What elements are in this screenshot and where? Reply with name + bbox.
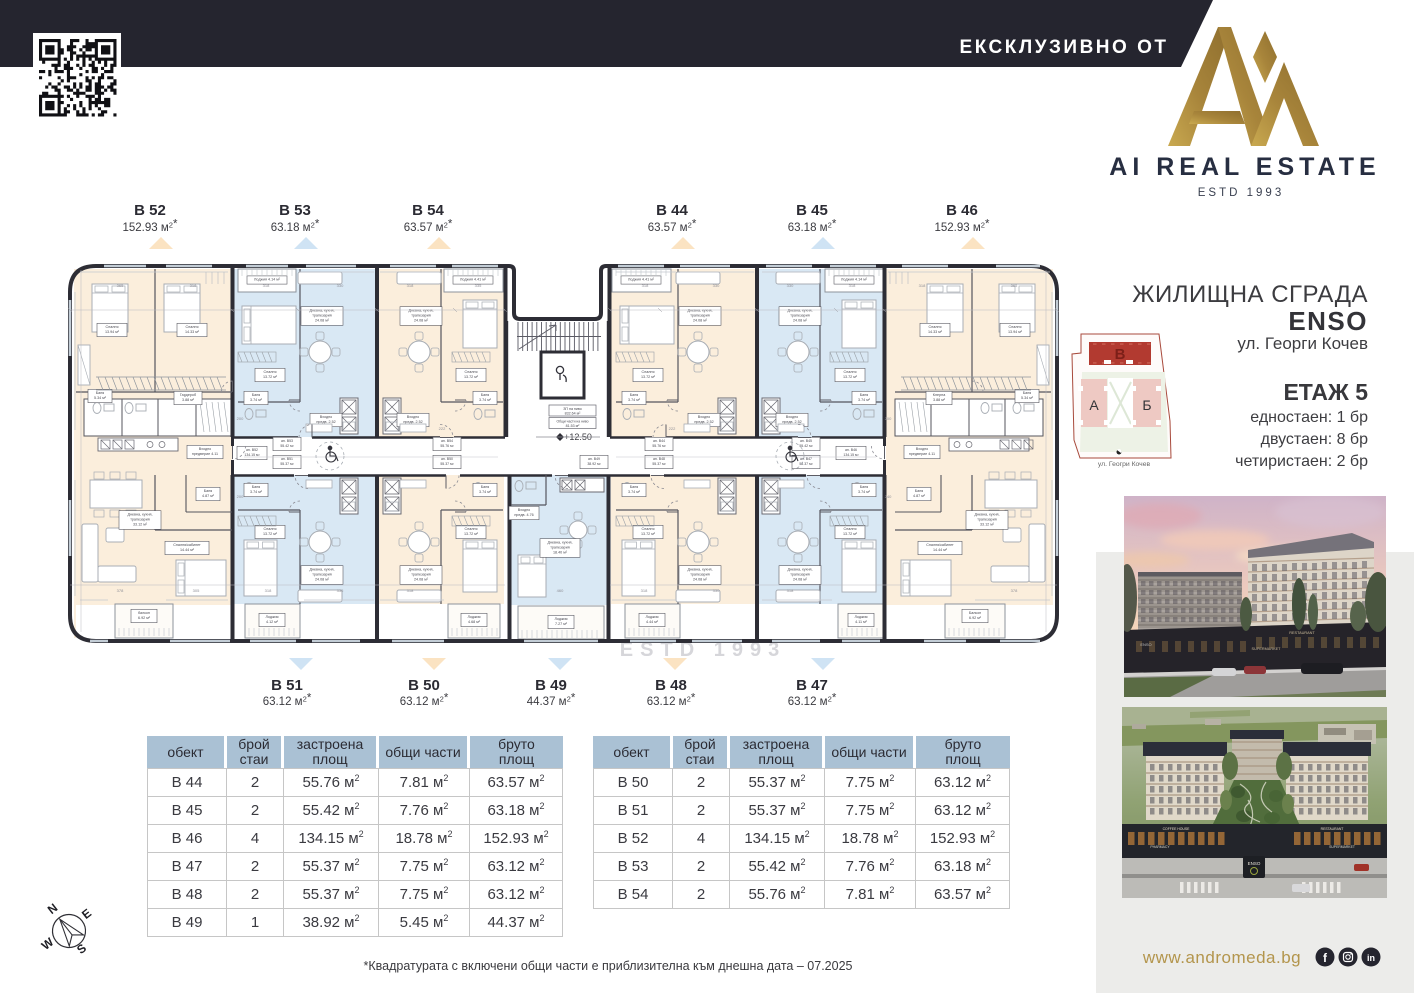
svg-text:RESTAURANT: RESTAURANT bbox=[1321, 827, 1344, 831]
svg-text:Лоджия: Лоджия bbox=[854, 615, 867, 619]
svg-text:балкон: балкон bbox=[138, 611, 150, 615]
svg-text:Баня: Баня bbox=[630, 393, 639, 397]
svg-text:Балкон: Балкон bbox=[969, 611, 981, 615]
svg-text:ап. B46: ап. B46 bbox=[845, 448, 857, 452]
svg-text:AI REAL ESTATE: AI REAL ESTATE bbox=[1109, 153, 1380, 181]
svg-text:ESTD 1993: ESTD 1993 bbox=[1198, 187, 1284, 199]
svg-text:трапезария: трапезария bbox=[312, 314, 332, 318]
svg-text:3.74 м²: 3.74 м² bbox=[250, 398, 263, 402]
svg-text:Лоджия 4.41 м²: Лоджия 4.41 м² bbox=[628, 278, 655, 282]
svg-text:63.18 м2*: 63.18 м2* bbox=[788, 219, 837, 235]
svg-text:Спалня/кабинет: Спалня/кабинет bbox=[926, 543, 954, 547]
svg-text:7.27 м²: 7.27 м² bbox=[555, 622, 568, 626]
svg-text:318: 318 bbox=[787, 588, 794, 593]
svg-text:3.88 м²: 3.88 м² bbox=[933, 398, 946, 402]
svg-text:330: 330 bbox=[337, 283, 344, 288]
svg-text:B 54: B 54 bbox=[412, 202, 444, 219]
svg-text:Лоджия 4.41 м²: Лоджия 4.41 м² bbox=[460, 278, 487, 282]
svg-text:B 48: B 48 bbox=[655, 677, 687, 694]
svg-text:5.34 м²: 5.34 м² bbox=[94, 396, 107, 400]
svg-text:365: 365 bbox=[1011, 283, 1018, 288]
svg-text:предверие 4.11: предверие 4.11 bbox=[909, 452, 935, 456]
svg-text:200: 200 bbox=[237, 416, 244, 421]
svg-text:Спалня: Спалня bbox=[642, 370, 655, 374]
svg-text:ап. B48: ап. B48 bbox=[653, 457, 665, 461]
svg-text:200: 200 bbox=[885, 416, 892, 421]
svg-text:13.72 м²: 13.72 м² bbox=[464, 375, 479, 379]
svg-text:13.72 м²: 13.72 м² bbox=[263, 532, 278, 536]
svg-text:Гардероб: Гардероб bbox=[180, 393, 196, 397]
svg-text:Дневна, кухня,: Дневна, кухня, bbox=[687, 308, 712, 312]
svg-text:Спалня: Спалня bbox=[186, 325, 199, 329]
svg-text:13.72 м²: 13.72 м² bbox=[641, 532, 656, 536]
svg-text:222: 222 bbox=[439, 426, 446, 431]
svg-text:318: 318 bbox=[263, 283, 270, 288]
svg-text:Лоджия: Лоджия bbox=[467, 615, 480, 619]
svg-text:44.37 м2*: 44.37 м2* bbox=[527, 693, 576, 709]
svg-text:трапезария: трапезария bbox=[790, 314, 810, 318]
svg-text:Лоджия: Лоджия bbox=[265, 615, 278, 619]
svg-text:ENSO: ENSO bbox=[1140, 642, 1151, 647]
svg-text:5.34 м²: 5.34 м² bbox=[1021, 396, 1034, 400]
svg-text:14.33 м²: 14.33 м² bbox=[185, 330, 200, 334]
svg-text:PHARMACY: PHARMACY bbox=[1150, 845, 1170, 849]
svg-text:ул. Геогри Кочев: ул. Геогри Кочев bbox=[1098, 461, 1151, 468]
svg-text:318: 318 bbox=[407, 283, 414, 288]
svg-text:200: 200 bbox=[237, 494, 244, 499]
svg-text:Баня: Баня bbox=[481, 485, 490, 489]
svg-text:33.12 м²: 33.12 м² bbox=[133, 523, 148, 527]
svg-text:6.92 м²: 6.92 м² bbox=[138, 616, 151, 620]
svg-text:330: 330 bbox=[787, 283, 794, 288]
svg-text:SUPERMARKET: SUPERMARKET bbox=[1252, 647, 1282, 651]
svg-text:B 45: B 45 bbox=[796, 202, 828, 219]
svg-text:ап. B49: ап. B49 bbox=[588, 457, 600, 461]
svg-text:ап. B53: ап. B53 bbox=[281, 439, 293, 443]
svg-text:63.57 м2*: 63.57 м2* bbox=[648, 219, 697, 235]
svg-text:13.72 м²: 13.72 м² bbox=[263, 375, 278, 379]
svg-text:Лоджия: Лоджия bbox=[645, 615, 658, 619]
svg-text:Дневна, кухня,: Дневна, кухня, bbox=[547, 540, 572, 544]
svg-text:трапезария: трапезария bbox=[977, 518, 997, 522]
svg-text:318: 318 bbox=[407, 588, 414, 593]
svg-text:предв. 2.52: предв. 2.52 bbox=[316, 420, 335, 424]
svg-text:Дневна, кухня,: Дневна, кухня, bbox=[309, 567, 334, 571]
svg-text:330: 330 bbox=[713, 588, 720, 593]
svg-text:Дневна, кухня,: Дневна, кухня, bbox=[787, 567, 812, 571]
svg-text:152.93 м2*: 152.93 м2* bbox=[935, 219, 991, 235]
svg-text:55.37 м²: 55.37 м² bbox=[652, 462, 666, 466]
svg-text:В: В bbox=[1115, 346, 1126, 363]
svg-text:Баня: Баня bbox=[252, 393, 261, 397]
svg-text:3.74 м²: 3.74 м² bbox=[858, 398, 871, 402]
svg-text:318: 318 bbox=[642, 283, 649, 288]
svg-text:Спалня: Спалня bbox=[465, 527, 478, 531]
svg-text:Б: Б bbox=[1142, 397, 1151, 413]
svg-text:81.53 м²: 81.53 м² bbox=[566, 424, 580, 428]
svg-text:63.12 м2*: 63.12 м2* bbox=[647, 693, 696, 709]
svg-text:13.94 м²: 13.94 м² bbox=[1008, 330, 1023, 334]
svg-text:Баня: Баня bbox=[96, 391, 105, 395]
svg-text:Дневна, кухня,: Дневна, кухня, bbox=[687, 567, 712, 571]
svg-text:ап. B44: ап. B44 bbox=[653, 439, 665, 443]
svg-text:COFFEE HOUSE: COFFEE HOUSE bbox=[1163, 827, 1190, 831]
svg-text:Входно: Входно bbox=[786, 415, 798, 419]
svg-text:Входно: Входно bbox=[518, 508, 530, 512]
svg-text:Баня: Баня bbox=[630, 485, 639, 489]
svg-text:13.94 м²: 13.94 м² bbox=[105, 330, 120, 334]
svg-text:предв. 2.52: предв. 2.52 bbox=[782, 420, 801, 424]
svg-text:SUPERMARKET: SUPERMARKET bbox=[1329, 845, 1355, 849]
svg-text:305: 305 bbox=[193, 588, 200, 593]
svg-text:3.74 м²: 3.74 м² bbox=[628, 398, 641, 402]
svg-text:365: 365 bbox=[117, 283, 124, 288]
svg-text:B 52: B 52 bbox=[134, 202, 166, 219]
svg-text:Дневна, кухня,: Дневна, кухня, bbox=[408, 308, 433, 312]
svg-text:Общи части на ниво: Общи части на ниво bbox=[556, 420, 588, 424]
svg-text:24.08 м²: 24.08 м² bbox=[414, 319, 429, 323]
svg-text:Спалня: Спалня bbox=[929, 325, 942, 329]
svg-text:Спалня: Спалня bbox=[844, 527, 857, 531]
svg-text:Баня: Баня bbox=[252, 485, 261, 489]
svg-text:Спалня: Спалня bbox=[465, 370, 478, 374]
svg-text:55.76 м²: 55.76 м² bbox=[440, 444, 454, 448]
svg-text:24.08 м²: 24.08 м² bbox=[315, 578, 330, 582]
svg-text:Дневна, кухня,: Дневна, кухня, bbox=[408, 567, 433, 571]
svg-text:Баня: Баня bbox=[204, 489, 213, 493]
svg-text:Спалня: Спалня bbox=[106, 325, 119, 329]
svg-text:B 50: B 50 bbox=[408, 677, 440, 694]
svg-text:Спалня: Спалня bbox=[264, 370, 277, 374]
svg-text:Входно: Входно bbox=[199, 447, 211, 451]
svg-text:4.68 м²: 4.68 м² bbox=[468, 620, 481, 624]
svg-text:134.15 м²: 134.15 м² bbox=[244, 453, 260, 457]
svg-text:предв. 4.76: предв. 4.76 bbox=[514, 513, 533, 517]
svg-text:ап. B51: ап. B51 bbox=[281, 457, 293, 461]
svg-text:Спалня: Спалня bbox=[844, 370, 857, 374]
svg-text:330: 330 bbox=[713, 283, 720, 288]
svg-text:335: 335 bbox=[337, 588, 344, 593]
svg-text:in: in bbox=[1367, 953, 1375, 963]
svg-text:Баня: Баня bbox=[915, 489, 924, 493]
svg-text:318: 318 bbox=[190, 283, 197, 288]
svg-text:3.88 м²: 3.88 м² bbox=[182, 398, 195, 402]
svg-text:N: N bbox=[45, 901, 60, 917]
svg-text:RESTAURANT: RESTAURANT bbox=[1289, 631, 1315, 635]
svg-text:ЗП на ниво: ЗП на ниво bbox=[563, 407, 582, 411]
svg-text:Баня: Баня bbox=[481, 393, 490, 397]
svg-text:13.72 м²: 13.72 м² bbox=[464, 532, 479, 536]
svg-text:38.92 м²: 38.92 м² bbox=[587, 462, 601, 466]
svg-text:13.72 м²: 13.72 м² bbox=[843, 532, 858, 536]
svg-text:55.42 м²: 55.42 м² bbox=[280, 444, 294, 448]
svg-text:трапезария: трапезария bbox=[550, 546, 570, 550]
svg-text:Клерна: Клерна bbox=[933, 393, 946, 397]
svg-text:13.72 м²: 13.72 м² bbox=[641, 375, 656, 379]
svg-text:Дневна, кухня,: Дневна, кухня, bbox=[309, 308, 334, 312]
svg-text:4.87 м²: 4.87 м² bbox=[913, 494, 926, 498]
svg-text:6.92 м²: 6.92 м² bbox=[969, 616, 982, 620]
svg-text:24.08 м²: 24.08 м² bbox=[793, 578, 808, 582]
svg-text:460: 460 bbox=[557, 588, 564, 593]
svg-text:Спалня: Спалня bbox=[1009, 325, 1022, 329]
svg-text:63.12 м2*: 63.12 м2* bbox=[788, 693, 837, 709]
svg-text:378: 378 bbox=[117, 588, 124, 593]
svg-text:B 44: B 44 bbox=[656, 202, 688, 219]
svg-text:63.18 м2*: 63.18 м2* bbox=[271, 219, 320, 235]
svg-text:трапезария: трапезария bbox=[411, 314, 431, 318]
svg-text:222: 222 bbox=[669, 426, 676, 431]
svg-text:24.08 м²: 24.08 м² bbox=[693, 578, 708, 582]
svg-text:Лоджия 4.14 м²: Лоджия 4.14 м² bbox=[254, 278, 281, 282]
svg-text:трапезария: трапезария bbox=[411, 573, 431, 577]
svg-text:14.44 м²: 14.44 м² bbox=[180, 548, 195, 552]
svg-text:335: 335 bbox=[475, 283, 482, 288]
svg-text:Дневна, кухня,: Дневна, кухня, bbox=[127, 512, 152, 516]
svg-text:55.76 м²: 55.76 м² bbox=[652, 444, 666, 448]
svg-text:24.08 м²: 24.08 м² bbox=[414, 578, 429, 582]
svg-text:B 49: B 49 bbox=[535, 677, 567, 694]
svg-text:B 46: B 46 bbox=[946, 202, 978, 219]
svg-text:14.33 м²: 14.33 м² bbox=[928, 330, 943, 334]
svg-text:предверие 4.11: предверие 4.11 bbox=[192, 452, 218, 456]
svg-text:3.74 м²: 3.74 м² bbox=[858, 490, 871, 494]
svg-text:4.12 м²: 4.12 м² bbox=[266, 620, 279, 624]
svg-text:3.74 м²: 3.74 м² bbox=[250, 490, 263, 494]
svg-text:378: 378 bbox=[1011, 588, 1018, 593]
svg-text:Входно: Входно bbox=[698, 415, 710, 419]
svg-text:63.12 м2*: 63.12 м2* bbox=[263, 693, 312, 709]
svg-text:ап. B47: ап. B47 bbox=[800, 457, 812, 461]
svg-text:Дневна, кухня,: Дневна, кухня, bbox=[787, 308, 812, 312]
svg-text:ап. B45: ап. B45 bbox=[800, 439, 812, 443]
svg-text:318: 318 bbox=[641, 588, 648, 593]
svg-text:832.64 м²: 832.64 м² bbox=[565, 412, 581, 416]
svg-text:14.44 м²: 14.44 м² bbox=[933, 548, 948, 552]
svg-text:18.40 м²: 18.40 м² bbox=[553, 551, 568, 555]
svg-text:Дневна, кухня,: Дневна, кухня, bbox=[974, 512, 999, 516]
svg-text:24.08 м²: 24.08 м² bbox=[315, 319, 330, 323]
svg-text:ЕКСКЛУЗИВНО ОТ: ЕКСКЛУЗИВНО ОТ bbox=[960, 37, 1169, 58]
svg-text:Лоджия 4.14 м²: Лоджия 4.14 м² bbox=[841, 278, 868, 282]
svg-text:318: 318 bbox=[849, 283, 856, 288]
svg-text:4.11 м²: 4.11 м² bbox=[855, 620, 867, 624]
svg-text:240: 240 bbox=[885, 494, 892, 499]
svg-text:B 51: B 51 bbox=[271, 677, 303, 694]
svg-text:3.74 м²: 3.74 м² bbox=[479, 490, 492, 494]
svg-text:ап. B52: ап. B52 bbox=[246, 448, 258, 452]
svg-text:4.44 м²: 4.44 м² bbox=[646, 620, 659, 624]
svg-text:Спалня/кабинет: Спалня/кабинет bbox=[173, 543, 201, 547]
svg-text:55.37 м²: 55.37 м² bbox=[280, 462, 294, 466]
svg-text:предв. 2.52: предв. 2.52 bbox=[403, 420, 422, 424]
svg-text:предв. 2.52: предв. 2.52 bbox=[694, 420, 713, 424]
svg-text:ENSO: ENSO bbox=[1248, 861, 1261, 866]
svg-text:55.37 м²: 55.37 м² bbox=[440, 462, 454, 466]
svg-text:А: А bbox=[1089, 397, 1099, 413]
svg-text:24.08 м²: 24.08 м² bbox=[693, 319, 708, 323]
svg-text:Входно: Входно bbox=[320, 415, 332, 419]
svg-text:318: 318 bbox=[919, 283, 926, 288]
svg-text:S: S bbox=[74, 941, 89, 957]
svg-text:Баня: Баня bbox=[860, 485, 869, 489]
svg-text:4.87 м²: 4.87 м² bbox=[202, 494, 215, 498]
svg-text:63.12 м2*: 63.12 м2* bbox=[400, 693, 449, 709]
svg-text:Спалня: Спалня bbox=[264, 527, 277, 531]
svg-text:Лоджия: Лоджия bbox=[554, 617, 567, 621]
svg-text:Спалня: Спалня bbox=[642, 527, 655, 531]
svg-text:Входно: Входно bbox=[916, 447, 928, 451]
svg-text:152.93 м2*: 152.93 м2* bbox=[123, 219, 179, 235]
svg-text:B 47: B 47 bbox=[796, 677, 828, 694]
svg-text:трапезария: трапезария bbox=[790, 573, 810, 577]
svg-text:33.12 м²: 33.12 м² bbox=[980, 523, 995, 527]
svg-text:134.15 м²: 134.15 м² bbox=[843, 453, 859, 457]
svg-text:13.72 м²: 13.72 м² bbox=[843, 375, 858, 379]
svg-text:318: 318 bbox=[265, 588, 272, 593]
svg-text:24.08 м²: 24.08 м² bbox=[793, 319, 808, 323]
svg-text:ап. B50: ап. B50 bbox=[441, 457, 453, 461]
svg-text:ап. B54: ап. B54 bbox=[441, 439, 453, 443]
svg-text:трапезария: трапезария bbox=[312, 573, 332, 577]
svg-text:63.57 м2*: 63.57 м2* bbox=[404, 219, 453, 235]
svg-text:B 53: B 53 bbox=[279, 202, 311, 219]
svg-text:Баня: Баня bbox=[860, 393, 869, 397]
svg-text:трапезария: трапезария bbox=[690, 573, 710, 577]
svg-text:Баня: Баня bbox=[1023, 391, 1032, 395]
svg-text:3.74 м²: 3.74 м² bbox=[479, 398, 492, 402]
svg-text:Входно: Входно bbox=[407, 415, 419, 419]
svg-text:трапезария: трапезария bbox=[130, 518, 150, 522]
svg-text:трапезария: трапезария bbox=[690, 314, 710, 318]
svg-text:3.74 м²: 3.74 м² bbox=[628, 490, 641, 494]
